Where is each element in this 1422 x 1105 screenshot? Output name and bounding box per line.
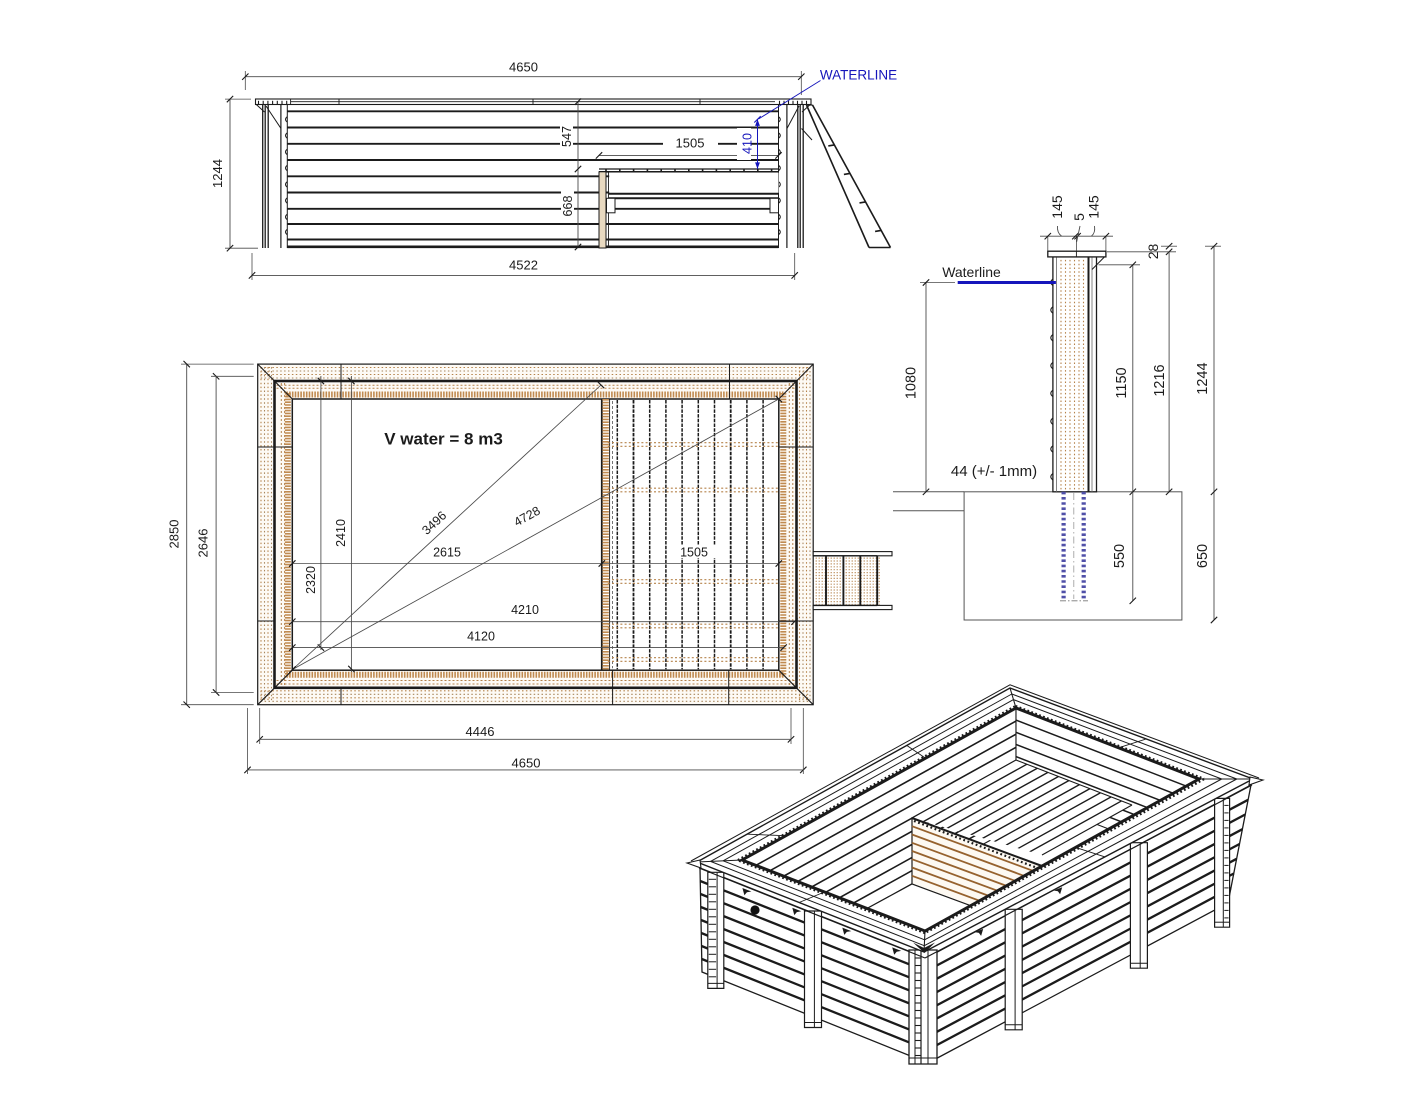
svg-text:1244: 1244 xyxy=(210,159,225,188)
svg-text:547: 547 xyxy=(560,126,574,147)
svg-text:2646: 2646 xyxy=(196,529,211,558)
svg-text:668: 668 xyxy=(561,196,575,217)
svg-text:44 (+/- 1mm): 44 (+/- 1mm) xyxy=(951,463,1037,480)
svg-text:410: 410 xyxy=(741,133,755,154)
svg-text:4650: 4650 xyxy=(509,60,538,75)
svg-text:4446: 4446 xyxy=(466,724,495,739)
svg-text:V water = 8 m3: V water = 8 m3 xyxy=(384,430,503,449)
svg-text:4522: 4522 xyxy=(509,258,538,273)
svg-text:2850: 2850 xyxy=(167,520,182,549)
svg-text:1150: 1150 xyxy=(1114,367,1130,398)
svg-text:4210: 4210 xyxy=(511,603,539,617)
svg-text:Waterline: Waterline xyxy=(942,264,1001,280)
svg-text:145: 145 xyxy=(1049,195,1065,219)
svg-text:145: 145 xyxy=(1086,195,1102,219)
svg-text:550: 550 xyxy=(1112,544,1128,568)
svg-text:1216: 1216 xyxy=(1152,364,1168,396)
svg-text:WATERLINE: WATERLINE xyxy=(820,68,897,83)
svg-text:28: 28 xyxy=(1145,244,1161,260)
svg-text:1505: 1505 xyxy=(680,546,708,560)
svg-text:650: 650 xyxy=(1195,544,1211,568)
svg-text:4120: 4120 xyxy=(467,630,495,644)
svg-text:2615: 2615 xyxy=(433,546,461,560)
svg-text:1244: 1244 xyxy=(1195,362,1211,394)
svg-text:4650: 4650 xyxy=(512,756,541,771)
svg-text:1080: 1080 xyxy=(904,367,920,399)
svg-text:2320: 2320 xyxy=(304,566,318,594)
svg-text:2410: 2410 xyxy=(334,519,348,547)
svg-text:1505: 1505 xyxy=(676,136,705,151)
